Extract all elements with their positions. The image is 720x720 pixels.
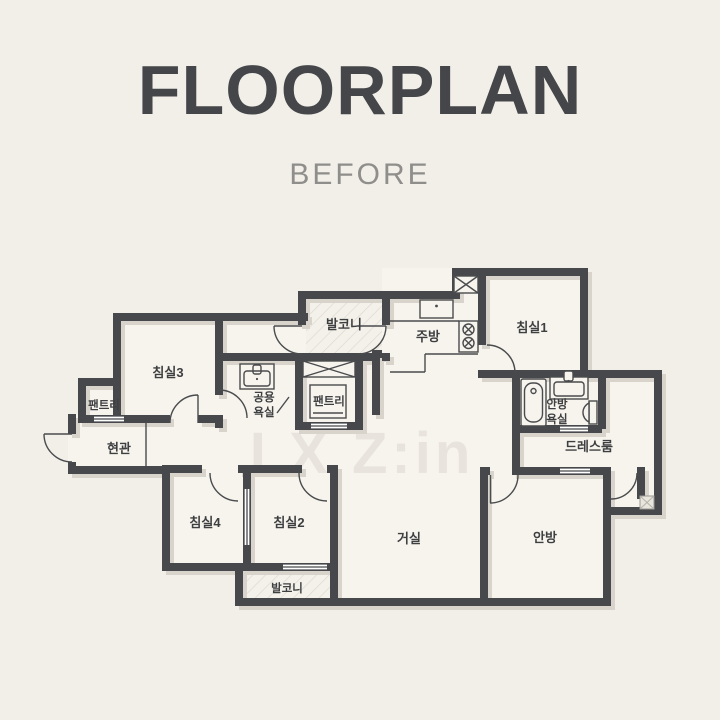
washbasin-icon — [240, 364, 274, 389]
room-label-living-room: 거실 — [397, 531, 421, 546]
room-label-bedroom-2: 침실2 — [273, 515, 304, 530]
room-label-dressroom: 드레스룸 — [565, 439, 613, 454]
floorplan-diagram: LX Z:in — [0, 0, 720, 720]
room-label-master-bedroom: 안방 — [533, 530, 557, 545]
watermark: LX Z:in — [250, 421, 475, 486]
room-label-balcony-bottom: 발코니 — [271, 581, 303, 595]
bathtub-icon — [521, 379, 546, 426]
floorplan-page: FLOORPLAN BEFORE LX Z:in — [0, 0, 720, 720]
room-label-common-bathroom-line1: 공용 — [253, 391, 275, 404]
room-label-bedroom-1: 침실1 — [516, 320, 547, 335]
room-label-pantry-center: 팬트리 — [313, 394, 345, 408]
kitchen-sink-icon — [420, 300, 453, 318]
room-label-bedroom-3: 침실3 — [152, 365, 183, 380]
room-label-common-bathroom-line2: 욕실 — [253, 405, 274, 419]
room-label-bedroom-4: 침실4 — [189, 515, 221, 530]
room-label-master-bathroom-line1: 안방 — [546, 397, 568, 411]
room-label-kitchen: 주방 — [416, 329, 440, 344]
room-label-balcony-top: 발코니 — [326, 317, 362, 332]
room-label-entrance: 현관 — [107, 441, 131, 456]
room-label-master-bathroom-line2: 욕실 — [546, 412, 567, 426]
room-label-pantry-left: 팬트리 — [88, 398, 120, 412]
stove-burner-icon — [459, 321, 478, 352]
